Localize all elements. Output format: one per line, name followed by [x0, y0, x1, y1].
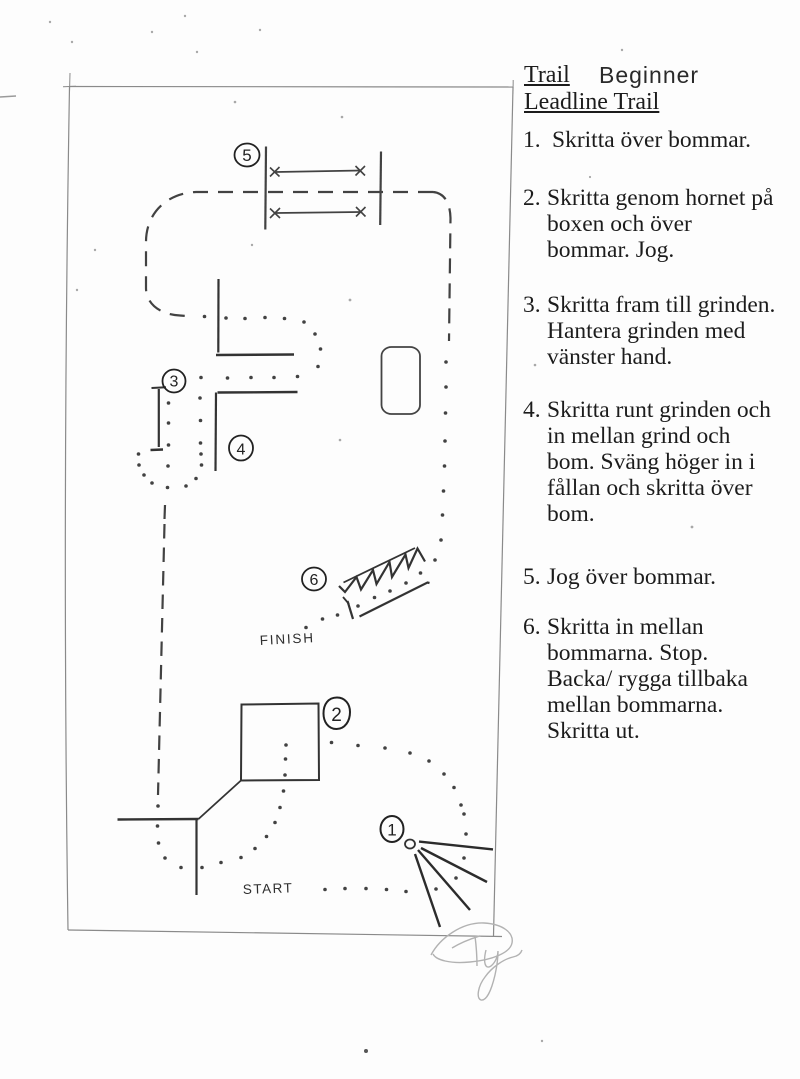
svg-text:2: 2: [331, 705, 342, 726]
svg-text:1: 1: [387, 821, 396, 840]
svg-text:START: START: [243, 880, 294, 897]
svg-text:FINISH: FINISH: [259, 630, 315, 648]
svg-text:3: 3: [170, 374, 179, 391]
svg-text:4: 4: [237, 442, 246, 459]
svg-text:6: 6: [310, 572, 319, 589]
svg-text:5: 5: [242, 146, 251, 165]
